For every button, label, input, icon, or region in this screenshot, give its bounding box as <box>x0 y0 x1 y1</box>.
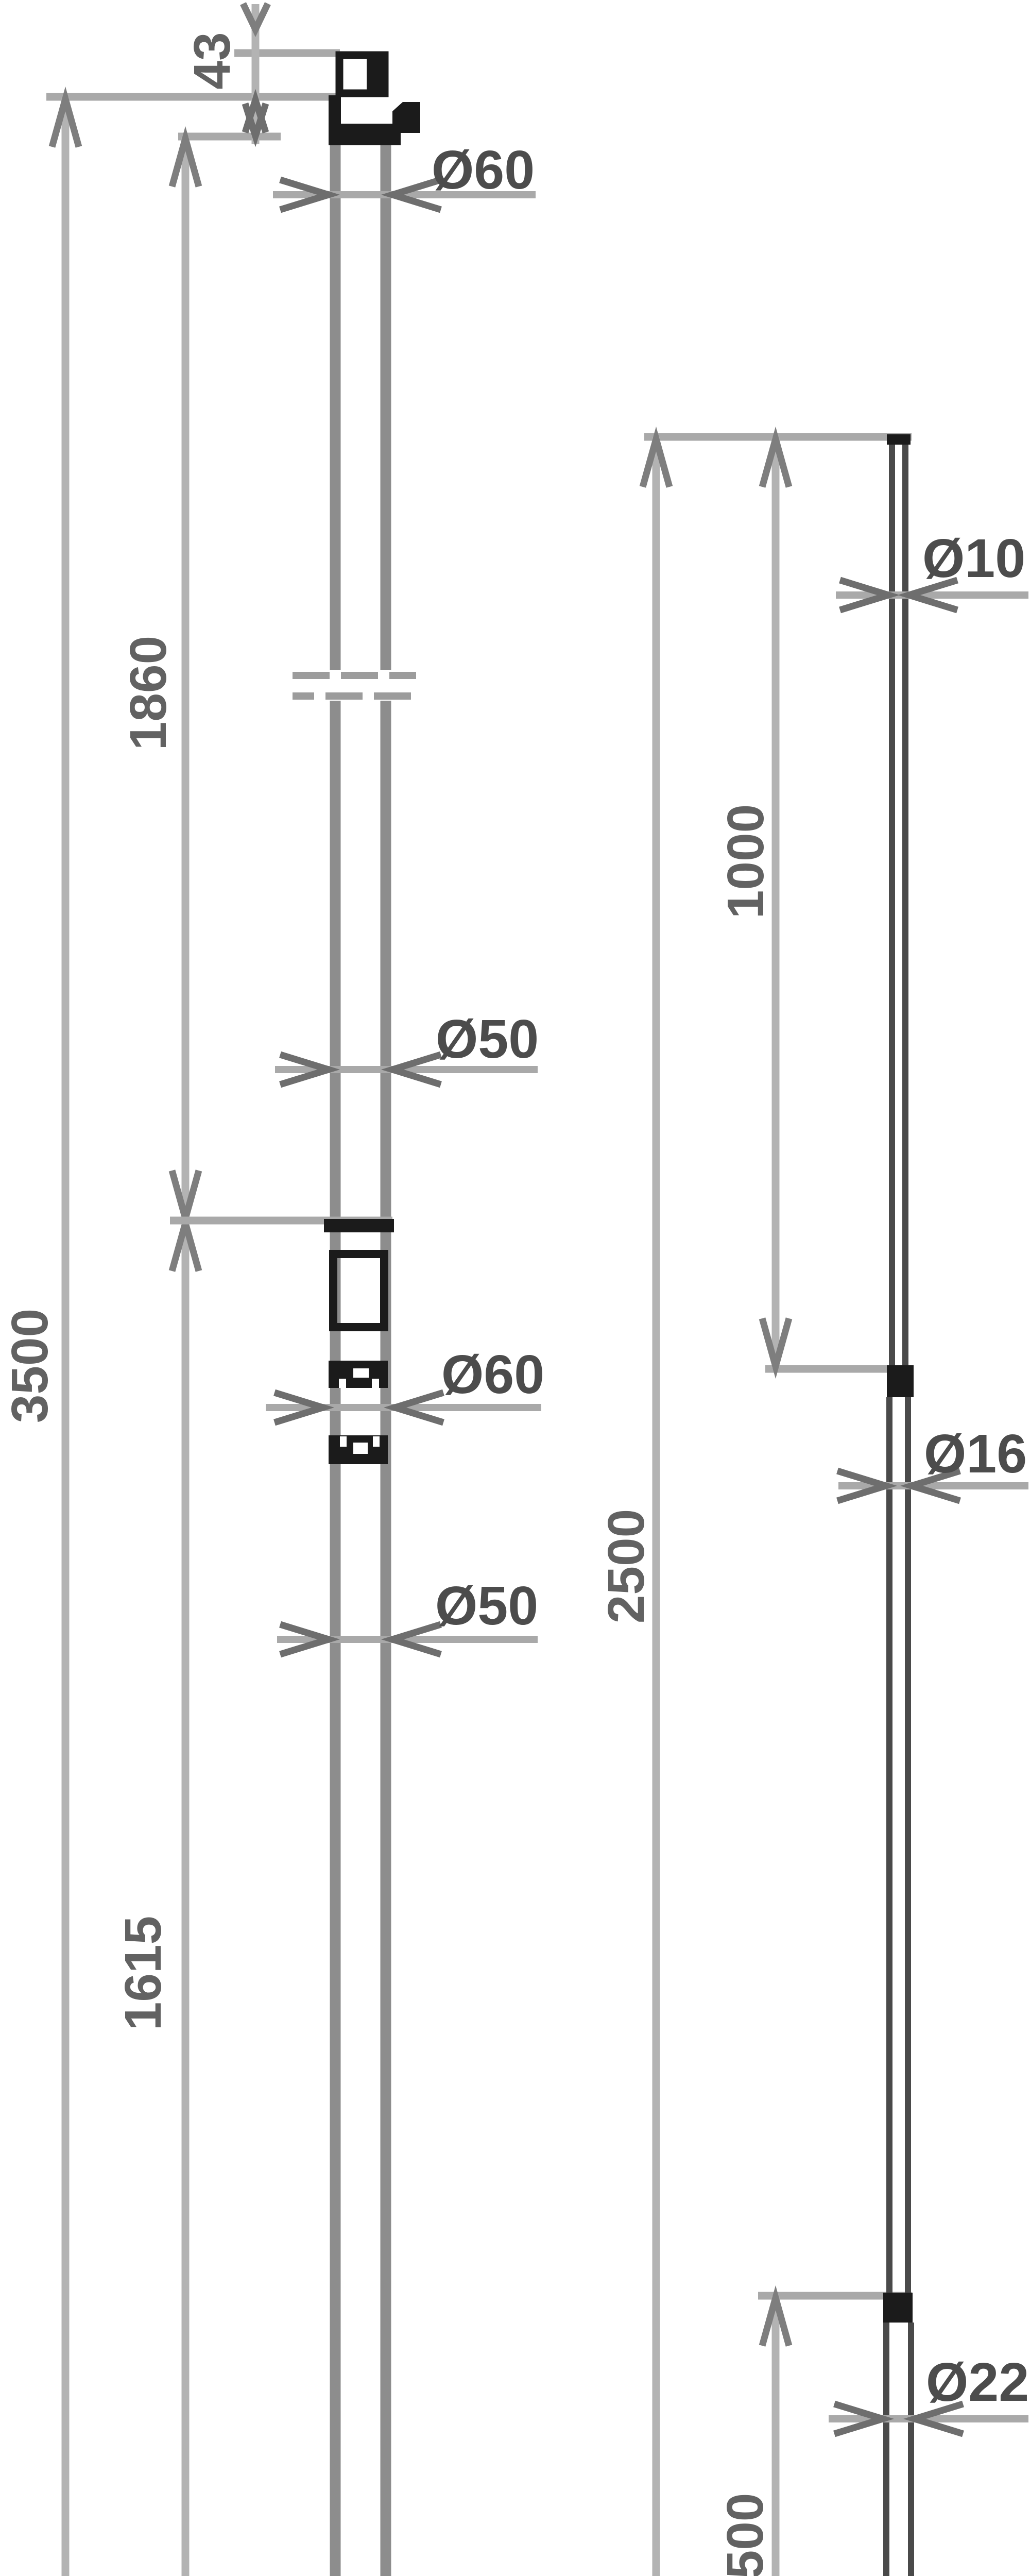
svg-text:1000: 1000 <box>717 804 775 919</box>
svg-text:43: 43 <box>183 32 241 89</box>
svg-text:1615: 1615 <box>114 1916 172 2030</box>
svg-text:Ø16: Ø16 <box>924 1423 1027 1484</box>
svg-text:Ø22: Ø22 <box>926 2352 1029 2413</box>
svg-text:500: 500 <box>716 2493 774 2576</box>
svg-text:2500: 2500 <box>597 1509 655 1623</box>
svg-text:Ø60: Ø60 <box>432 140 535 200</box>
svg-text:1860: 1860 <box>119 636 177 750</box>
svg-text:3500: 3500 <box>1 1309 59 1423</box>
svg-text:Ø10: Ø10 <box>922 528 1025 589</box>
svg-text:Ø60: Ø60 <box>441 1344 544 1405</box>
svg-text:Ø50: Ø50 <box>436 1009 539 1070</box>
svg-text:Ø50: Ø50 <box>435 1575 538 1636</box>
